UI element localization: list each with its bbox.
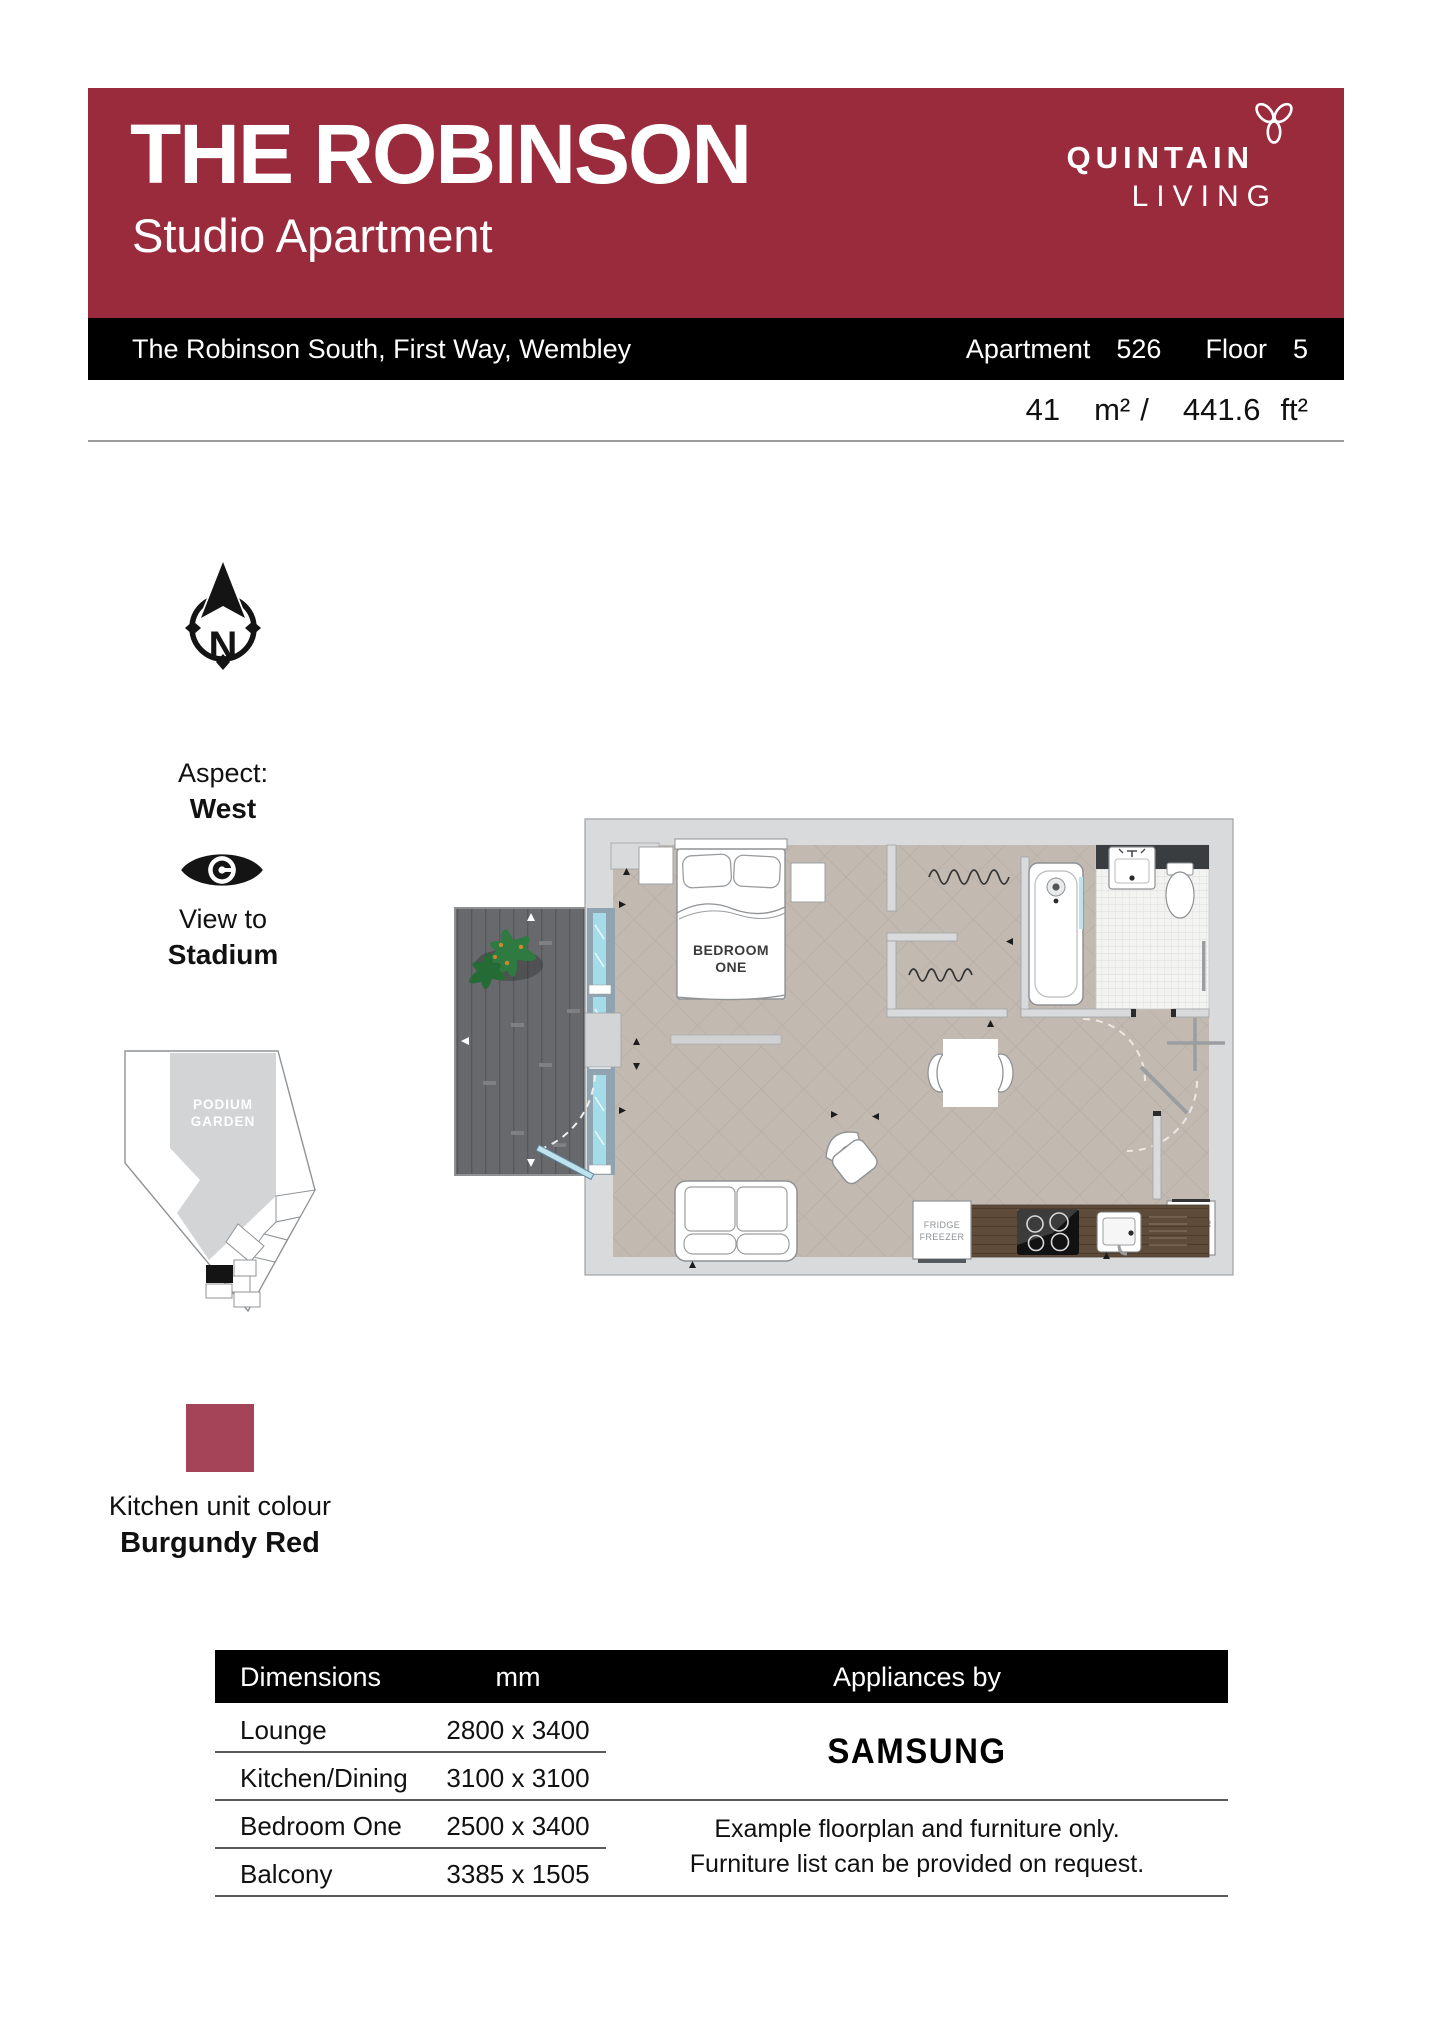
fridge-label-2: FREEZER (920, 1232, 965, 1242)
bathroom-sink (1109, 847, 1155, 889)
kitchen: FRIDGE FREEZER (913, 1201, 1209, 1263)
area-separator: / (1140, 392, 1149, 428)
view-value: Stadium (88, 937, 358, 973)
site-highlight-unit (206, 1265, 233, 1283)
area-metric-unit: m² (1094, 392, 1130, 428)
brand-name-2: LIVING (1066, 180, 1280, 214)
bedroom-label-2: ONE (715, 959, 747, 975)
apartment-number: 526 (1116, 334, 1161, 365)
room-size: 3385 x 1505 (395, 1859, 641, 1890)
address-text: The Robinson South, First Way, Wembley (132, 334, 631, 365)
compass-letter: N (209, 624, 238, 668)
room-name: Bedroom One (240, 1811, 402, 1842)
bathroom (1021, 845, 1209, 1017)
header-appliances: Appliances by (606, 1662, 1228, 1693)
room-name: Balcony (240, 1859, 333, 1890)
podium-garden-label-1: PODIUM (193, 1097, 253, 1112)
nightstand-right (791, 863, 825, 902)
sofa (675, 1181, 797, 1261)
room-size: 2500 x 3400 (395, 1811, 641, 1842)
dimensions-table: Dimensions mm Appliances by Lounge 2800 … (215, 1650, 1228, 1900)
floor-number: 5 (1293, 334, 1308, 365)
bathtub (1029, 863, 1083, 1005)
apartment-label: Apartment (966, 334, 1091, 365)
kitchen-colour-block: Kitchen unit colour Burgundy Red (60, 1488, 380, 1564)
header-banner: THE ROBINSON Studio Apartment QUINTAIN L… (88, 88, 1344, 318)
site-plan: PODIUM GARDEN (78, 1008, 328, 1318)
podium-garden-label-2: GARDEN (191, 1114, 256, 1129)
room-name: Lounge (240, 1715, 327, 1746)
kitchen-colour-label: Kitchen unit colour (60, 1488, 380, 1524)
bench (671, 1035, 781, 1044)
aspect-block: Aspect: West (88, 756, 358, 827)
view-label: View to (88, 902, 358, 937)
note-line-1: Example floorplan and furniture only. (714, 1812, 1119, 1848)
kitchen-colour-value: Burgundy Red (60, 1524, 380, 1563)
bed (675, 839, 787, 1000)
eye-icon (177, 845, 267, 895)
towel-rail (1202, 941, 1206, 991)
toilet (1166, 863, 1194, 918)
brand-name: QUINTAIN (1066, 140, 1280, 176)
address-bar: The Robinson South, First Way, Wembley A… (88, 318, 1344, 380)
floorplan: BEDROOM ONE (443, 813, 1253, 1283)
aspect-label: Aspect: (88, 756, 358, 791)
area-imperial-unit: ft² (1280, 392, 1308, 428)
kitchen-colour-swatch (186, 1404, 254, 1472)
fridge-label-1: FRIDGE (924, 1220, 960, 1230)
dining-table (943, 1039, 998, 1107)
view-block: View to Stadium (88, 902, 358, 973)
page-title: THE ROBINSON (130, 106, 750, 203)
compass-north-icon: N (163, 558, 283, 686)
room-size: 3100 x 3100 (395, 1763, 641, 1794)
bedroom-label-1: BEDROOM (693, 942, 769, 958)
floorplan-brochure-page: THE ROBINSON Studio Apartment QUINTAIN L… (0, 0, 1432, 2025)
floor-label: Floor (1205, 334, 1267, 365)
area-metric-value: 41 (1026, 392, 1060, 428)
apartment-info: Apartment 526 Floor 5 (966, 334, 1308, 365)
table-bottom-border (215, 1895, 1228, 1897)
brand-logo: QUINTAIN LIVING (1066, 140, 1280, 214)
hob (1017, 1209, 1079, 1255)
trillium-icon (1252, 100, 1296, 148)
area-imperial-value: 441.6 (1183, 392, 1261, 428)
fridge-freezer: FRIDGE FREEZER (913, 1201, 971, 1263)
dimensions-table-header: Dimensions mm Appliances by (215, 1650, 1228, 1703)
samsung-logo: SAMSUNG (606, 1699, 1228, 1803)
header-mm: mm (395, 1662, 641, 1693)
nightstand-left (639, 847, 673, 884)
note-line-2: Furniture list can be provided on reques… (690, 1847, 1144, 1883)
header-dimensions: Dimensions (240, 1662, 381, 1693)
area-row: 41 m² / 441.6 ft² (88, 380, 1344, 442)
page-subtitle: Studio Apartment (132, 208, 493, 263)
room-name: Kitchen/Dining (240, 1763, 408, 1794)
room-size: 2800 x 3400 (395, 1715, 641, 1746)
floorplan-note: Example floorplan and furniture only. Fu… (606, 1799, 1228, 1895)
aspect-value: West (88, 791, 358, 827)
